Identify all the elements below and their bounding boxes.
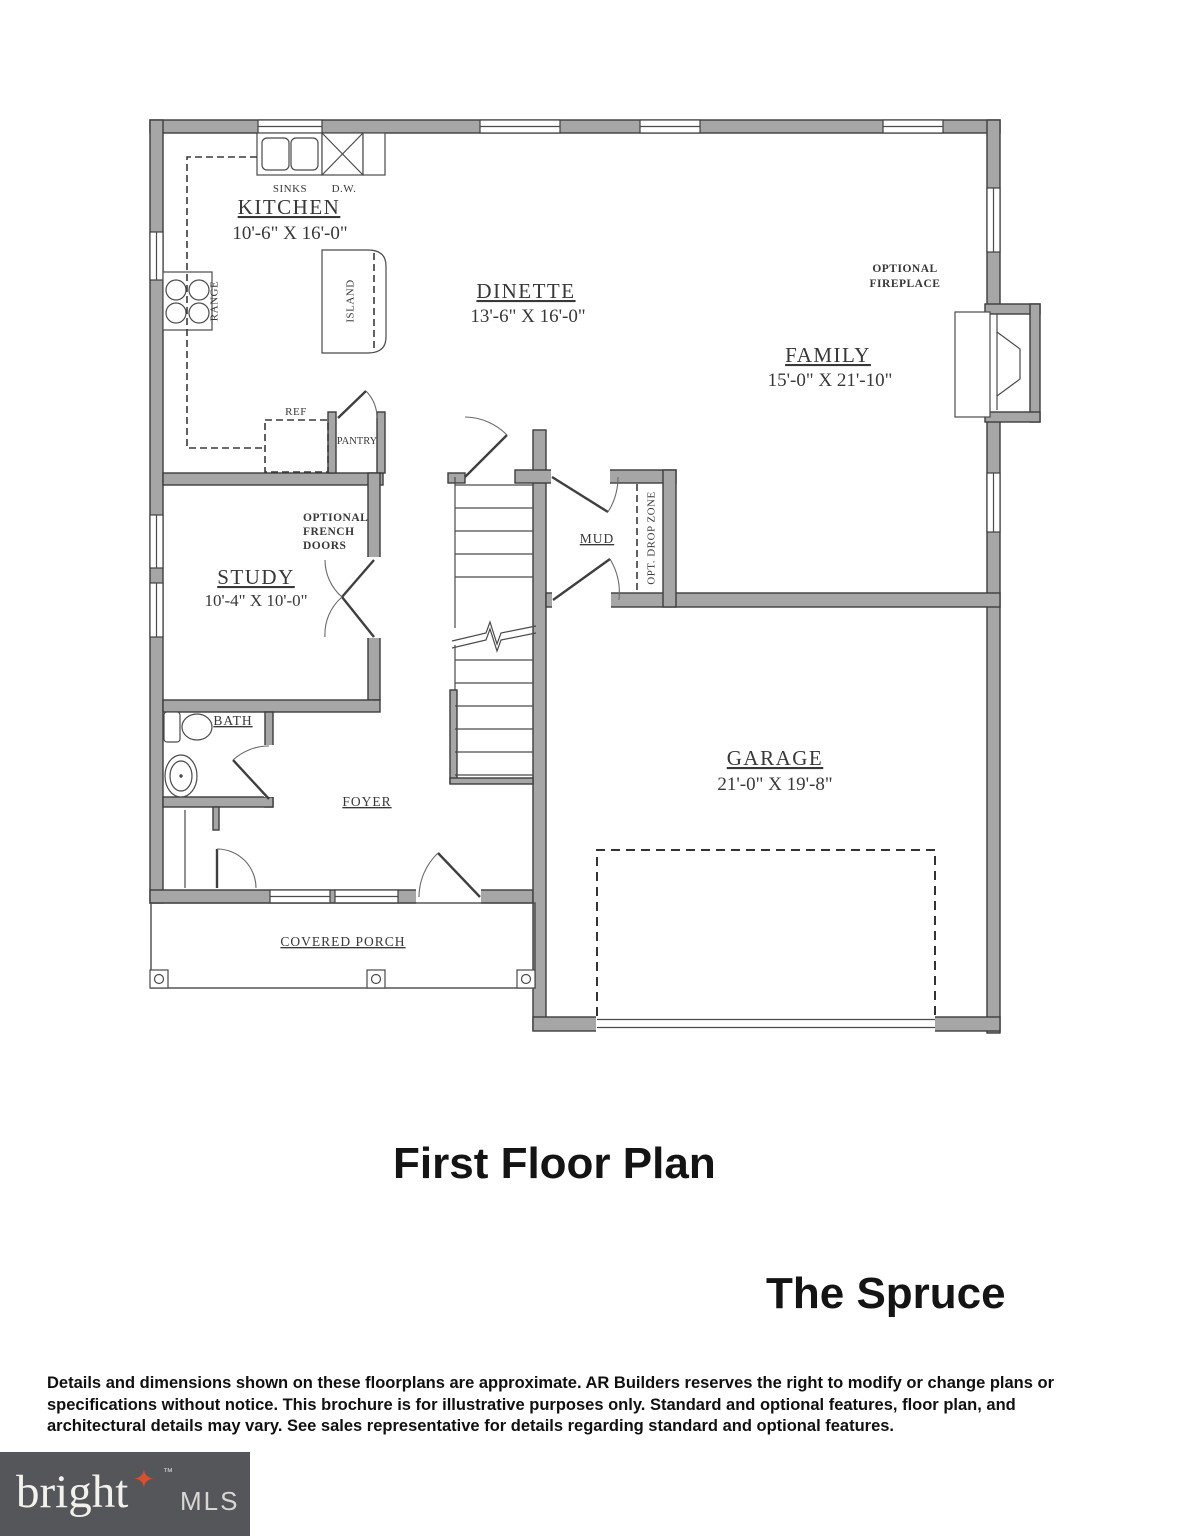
page-title: First Floor Plan (393, 1139, 716, 1189)
room-labels: KITCHEN 10'-6" X 16'-0" DINETTE 13'-6" X… (204, 195, 892, 949)
doors (217, 391, 619, 897)
family-label: FAMILY (785, 343, 871, 367)
sinks-label: SINKS (273, 183, 307, 195)
toilet-tank (164, 712, 180, 742)
floor-plan-drawing: KITCHEN 10'-6" X 16'-0" DINETTE 13'-6" X… (0, 0, 1188, 1100)
stair-break-line (452, 629, 536, 651)
door-closet (217, 849, 256, 888)
disclaimer-text: Details and dimensions shown on these fl… (47, 1373, 1054, 1438)
star-icon: ✦ (133, 1466, 155, 1492)
toilet-bowl (182, 714, 212, 740)
bright-mls-logo: bright ✦ ™ MLS (0, 1452, 250, 1536)
covered-porch-label: COVERED PORCH (280, 934, 405, 949)
porch-post (517, 970, 535, 988)
optional-fireplace-label: OPTIONAL (872, 263, 937, 275)
family-dims: 15'-0" X 21'-10" (768, 370, 893, 391)
ref-label: REF (285, 406, 307, 418)
refrigerator (265, 420, 328, 472)
kitchen-label: KITCHEN (238, 195, 341, 219)
sink-basin (262, 138, 289, 170)
optional-fireplace-label: FIREPLACE (870, 278, 941, 290)
optional-french-doors-label: OPTIONAL (303, 512, 368, 524)
staircase (450, 477, 536, 784)
porch-post (150, 970, 168, 988)
door-bath (233, 746, 269, 799)
door-pantry (338, 391, 377, 418)
trademark-symbol: ™ (163, 1467, 173, 1478)
disclaimer-line: architectural details may vary. See sale… (47, 1416, 1054, 1438)
kitchen-dims: 10'-6" X 16'-0" (232, 223, 347, 244)
logo-brand-text: bright (16, 1468, 128, 1517)
counter-cabinet (363, 133, 385, 175)
dinette-label: DINETTE (476, 279, 575, 303)
fireplace (955, 304, 1040, 422)
porch-post (367, 970, 385, 988)
optional-french-doors-label: DOORS (303, 540, 346, 552)
mud-label: MUD (580, 531, 615, 546)
door-hall-to-dinette (465, 417, 507, 477)
disclaimer-line: specifications without notice. This broc… (47, 1395, 1054, 1417)
dw-label: D.W. (332, 183, 357, 195)
floorplan-page: { "plan": { "rooms": { "kitchen": {"name… (0, 0, 1188, 1536)
logo-suffix-text: MLS (180, 1486, 239, 1517)
opt-drop-zone-label: OPT. DROP ZONE (646, 491, 658, 584)
bath-label: BATH (213, 713, 252, 728)
garage-door-outline (597, 850, 935, 1016)
pantry-label: PANTRY (337, 436, 378, 447)
model-name-title: The Spruce (766, 1269, 1006, 1319)
study-label: STUDY (217, 565, 295, 589)
foyer-label: FOYER (342, 794, 391, 809)
study-dims: 10'-4" X 10'-0" (204, 591, 307, 610)
garage-label: GARAGE (727, 746, 824, 770)
dinette-dims: 13'-6" X 16'-0" (470, 306, 585, 327)
sink-basin (291, 138, 318, 170)
optional-french-doors-label: FRENCH (303, 526, 355, 538)
range-label: RANGE (209, 281, 221, 321)
island-label: ISLAND (345, 279, 357, 322)
garage-dims: 21'-0" X 19'-8" (717, 774, 832, 795)
disclaimer-line: Details and dimensions shown on these fl… (47, 1373, 1054, 1395)
